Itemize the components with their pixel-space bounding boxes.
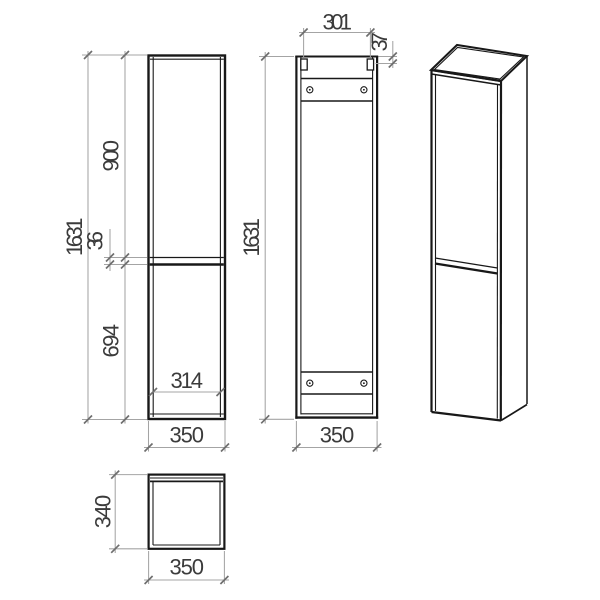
screw-center-dot <box>309 89 311 91</box>
perspective-view <box>431 45 527 421</box>
door-divider-top-line-3d <box>435 258 498 268</box>
top-view-outline <box>149 475 225 549</box>
right-hanger-bracket <box>367 59 373 70</box>
dim-label-front-width: 350 <box>170 423 204 448</box>
technical-drawing-page: 1631 900 36 694 314 350 <box>0 0 600 600</box>
top-face-inner-line <box>435 48 524 80</box>
top-view <box>149 475 225 549</box>
left-hanger-bracket <box>301 59 307 70</box>
front-bottom-edge <box>432 412 502 421</box>
back-view-dimensions: 301 37 1631 350 <box>239 10 397 452</box>
side-bottom-edge <box>501 405 527 421</box>
dim-label-hanger-offset: 37 <box>367 32 392 51</box>
screw-center-dot <box>363 89 365 91</box>
front-view <box>149 56 226 420</box>
front-view-outline <box>149 56 226 420</box>
dim-label-lower-door-height: 694 <box>99 324 124 357</box>
dim-label-door-gap: 36 <box>83 231 108 250</box>
door-divider-bottom-line-3d <box>435 264 498 274</box>
technical-drawing-svg: 1631 900 36 694 314 350 <box>0 0 600 600</box>
dim-label-inner-width: 314 <box>171 368 203 393</box>
screw-center-dot <box>363 382 365 384</box>
back-view <box>295 56 378 419</box>
dim-label-upper-door-height: 900 <box>99 140 124 171</box>
screw-center-dot <box>309 382 311 384</box>
dim-label-hanger-span: 301 <box>323 10 352 35</box>
dim-label-depth: 340 <box>91 495 116 528</box>
dim-label-back-width: 350 <box>320 423 354 448</box>
dim-label-top-width: 350 <box>170 555 204 580</box>
dim-label-back-total-height: 1631 <box>239 218 264 256</box>
